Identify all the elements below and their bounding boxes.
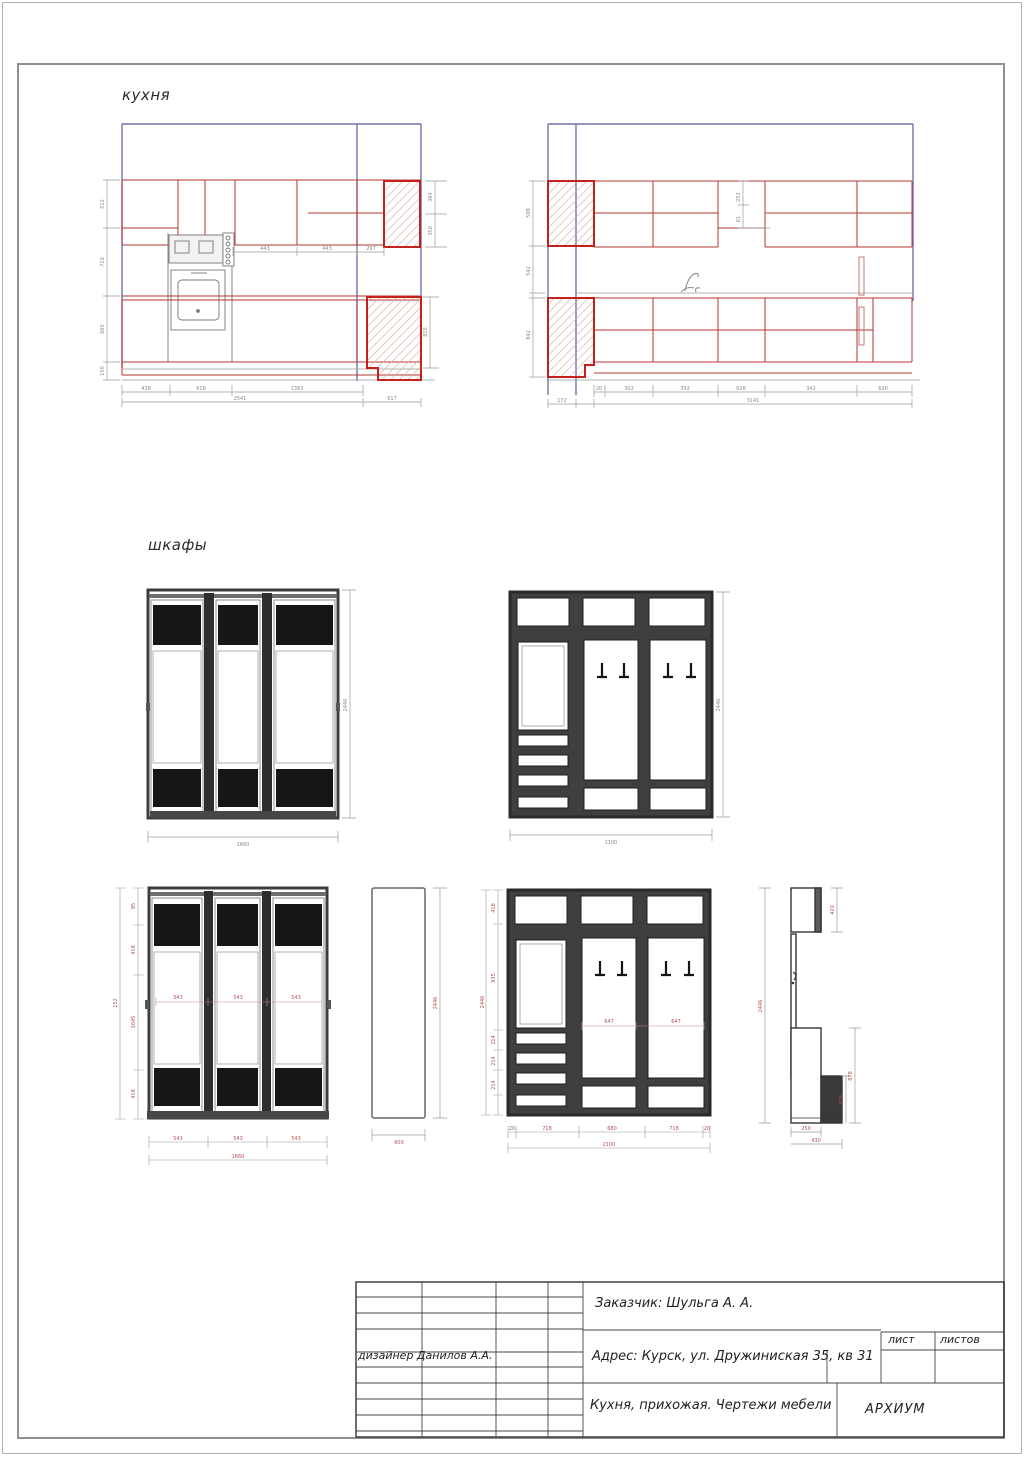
section-label-kitchen: кухня [122,86,170,104]
dim-label: 250 [801,1126,811,1132]
dim-label: 3141 [747,398,760,404]
dim-label: 2100 [603,1142,616,1148]
dim-label: 214 [491,1080,497,1090]
dim-label: 150 [100,366,106,376]
section-label-wardrobes: шкафы [148,536,207,554]
dim-label: 152 [113,998,119,1008]
dim-label: 364 [428,192,434,202]
counter-and-faucet [576,273,912,293]
dim-label: 443 [260,246,270,252]
wall-lines [548,124,913,395]
dim-label: 543 [291,995,301,1001]
title-block-subject: Кухня, прихожая. Чертежи мебели [590,1398,831,1413]
figure-wardrobe-front-dimensioned: 543 543 543 95 418 1045 418 152 543 543 … [100,880,350,1175]
dim-label: 543 [233,1136,243,1142]
dim-label: 617 [387,396,397,402]
dim-label: 20 [596,386,602,392]
dim-label: 710 [100,257,106,267]
dim-label: 350 [428,226,434,236]
wardrobe-body [145,888,331,1119]
hallway-body [508,890,710,1115]
dim-label: 543 [173,1136,183,1142]
dim-label: 352 [680,386,690,392]
dim-label: 618 [196,386,206,392]
dim-label: 2446 [480,996,486,1009]
dim-label: 1660 [232,1154,245,1160]
dim-label: 20 [704,1126,710,1132]
dim-label: 628 [736,386,746,392]
dim-label: 1660 [237,842,250,848]
figure-wardrobe-front: 2446 1660 [140,585,365,855]
dim-label: 420 [830,905,836,915]
dim-label: 2541 [234,396,247,402]
dim-label: 665 [100,324,106,334]
fridge-hatch-upper [548,181,594,246]
dim-label: 430 [811,1138,821,1144]
cooktop-oven [168,233,234,362]
dim-label: 2446 [758,1000,764,1013]
fridge-hatch-upper [384,181,420,247]
dim-label: 418 [131,1089,137,1099]
dim-label: 20 [509,1126,515,1132]
figure-kitchen-right-elevation: 252 61 598 542 842 20 302 352 628 342 62… [525,115,925,415]
title-block-address: Адрес: Курск, ул. Дружиниская 35, кв 31 [592,1349,874,1364]
dim-label: 2100 [605,840,618,846]
dim-label: 543 [233,995,243,1001]
fridge-hatch-lower [367,297,421,380]
dim-label: 302 [624,386,634,392]
dim-label: 542 [526,266,532,276]
drawing-sheet: кухня шкафы [0,0,1024,1457]
dim-label: 297 [366,246,376,252]
dim-label: 342 [806,386,816,392]
dim-label: 543 [173,995,183,1001]
upper-cabinets [594,181,912,247]
figure-hallway-side-profile: 2446 420 878 478 250 430 [745,880,875,1175]
dim-label: 600 [394,1140,404,1146]
dim-label: 2446 [433,997,439,1010]
dim-label: 214 [491,1056,497,1066]
figure-hallway-front: 2446 2100 [505,585,735,855]
dim-label: 252 [736,192,742,202]
dim-label: 418 [491,903,497,913]
dim-label: 512 [100,199,106,209]
dim-label: 935 [491,973,497,983]
figure-kitchen-left-elevation: 443 443 297 512 710 665 150 364 350 815 … [95,115,470,415]
dim-label: 647 [671,1019,681,1025]
dim-label: 543 [291,1136,301,1142]
profile-body [791,888,842,1123]
base-cabinets [548,257,920,380]
title-block-customer: Заказчик: Шульга А. А. [595,1296,753,1311]
dim-label: 718 [669,1126,679,1132]
hallway-body [510,592,712,817]
title-block-studio: АРХИУМ [865,1402,926,1417]
title-block-sheets-label: листов [940,1333,980,1346]
dim-label: 620 [878,386,888,392]
dim-label: 61 [736,216,742,222]
side-panel-outline [372,888,425,1118]
dim-label: 815 [423,327,429,337]
dim-label: 214 [491,1035,497,1045]
dim-label: 95 [131,903,137,909]
wardrobe-body [146,590,340,818]
dim-label: 1045 [131,1016,137,1029]
dim-label: 598 [526,208,532,218]
dim-label: 842 [526,330,532,340]
dim-label: 647 [604,1019,614,1025]
dim-label: 718 [542,1126,552,1132]
title-block-designer: дизайнер Данилов А.А. [358,1349,492,1362]
title-block-sheet-label: лист [888,1333,915,1346]
figure-wardrobe-side-panel: 2446 600 [360,880,460,1175]
dim-label: 1383 [291,386,304,392]
dim-label: 418 [131,945,137,955]
dim-label: 478 [839,1095,845,1105]
upper-cabinets [122,180,421,245]
dim-label: 438 [141,386,151,392]
figure-hallway-front-dimensioned: 647 647 418 935 214 214 214 2446 20 718 … [480,880,735,1175]
dim-label: 878 [848,1071,854,1081]
fridge-hatch-lower [548,298,594,377]
dim-label: 443 [322,246,332,252]
dim-label: 2446 [716,699,722,712]
dim-label: 172 [557,398,567,404]
dim-label: 680 [607,1126,617,1132]
dim-label: 2446 [343,699,349,712]
